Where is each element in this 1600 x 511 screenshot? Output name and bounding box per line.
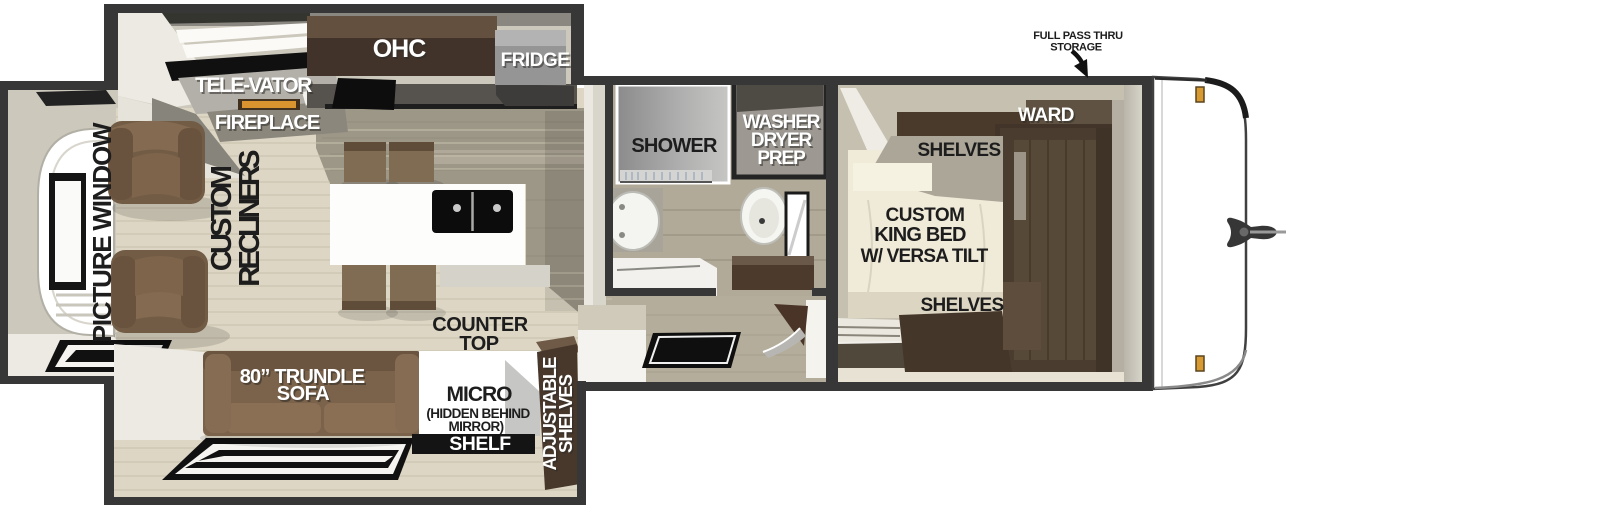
svg-text:FIREPLACE: FIREPLACE	[215, 112, 320, 134]
svg-text:TOP: TOP	[459, 333, 498, 355]
svg-text:PREP: PREP	[757, 148, 806, 169]
svg-text:STORAGE: STORAGE	[1050, 42, 1101, 54]
svg-text:TELE-VATOR: TELE-VATOR	[195, 74, 312, 97]
svg-text:FULL PASS THRU: FULL PASS THRU	[1033, 30, 1123, 42]
svg-text:CUSTOM: CUSTOM	[886, 205, 965, 226]
svg-text:SOFA: SOFA	[277, 383, 330, 405]
svg-text:PICTURE WINDOW: PICTURE WINDOW	[87, 122, 117, 342]
svg-text:SHELVES: SHELVES	[555, 374, 576, 453]
svg-text:MICRO: MICRO	[447, 383, 513, 406]
svg-text:MIRROR): MIRROR)	[448, 419, 503, 434]
svg-text:SHELVES: SHELVES	[920, 295, 1003, 316]
svg-text:WARD: WARD	[1018, 105, 1074, 126]
svg-text:SHOWER: SHOWER	[631, 135, 718, 157]
svg-text:FRIDGE: FRIDGE	[501, 50, 570, 71]
svg-text:RECLINERS: RECLINERS	[234, 150, 266, 287]
svg-text:SHELF: SHELF	[449, 433, 511, 455]
svg-text:OHC: OHC	[373, 35, 427, 63]
svg-text:W/ VERSA TILT: W/ VERSA TILT	[861, 246, 989, 267]
svg-text:KING BED: KING BED	[874, 224, 966, 246]
svg-text:SHELVES: SHELVES	[917, 140, 1000, 161]
